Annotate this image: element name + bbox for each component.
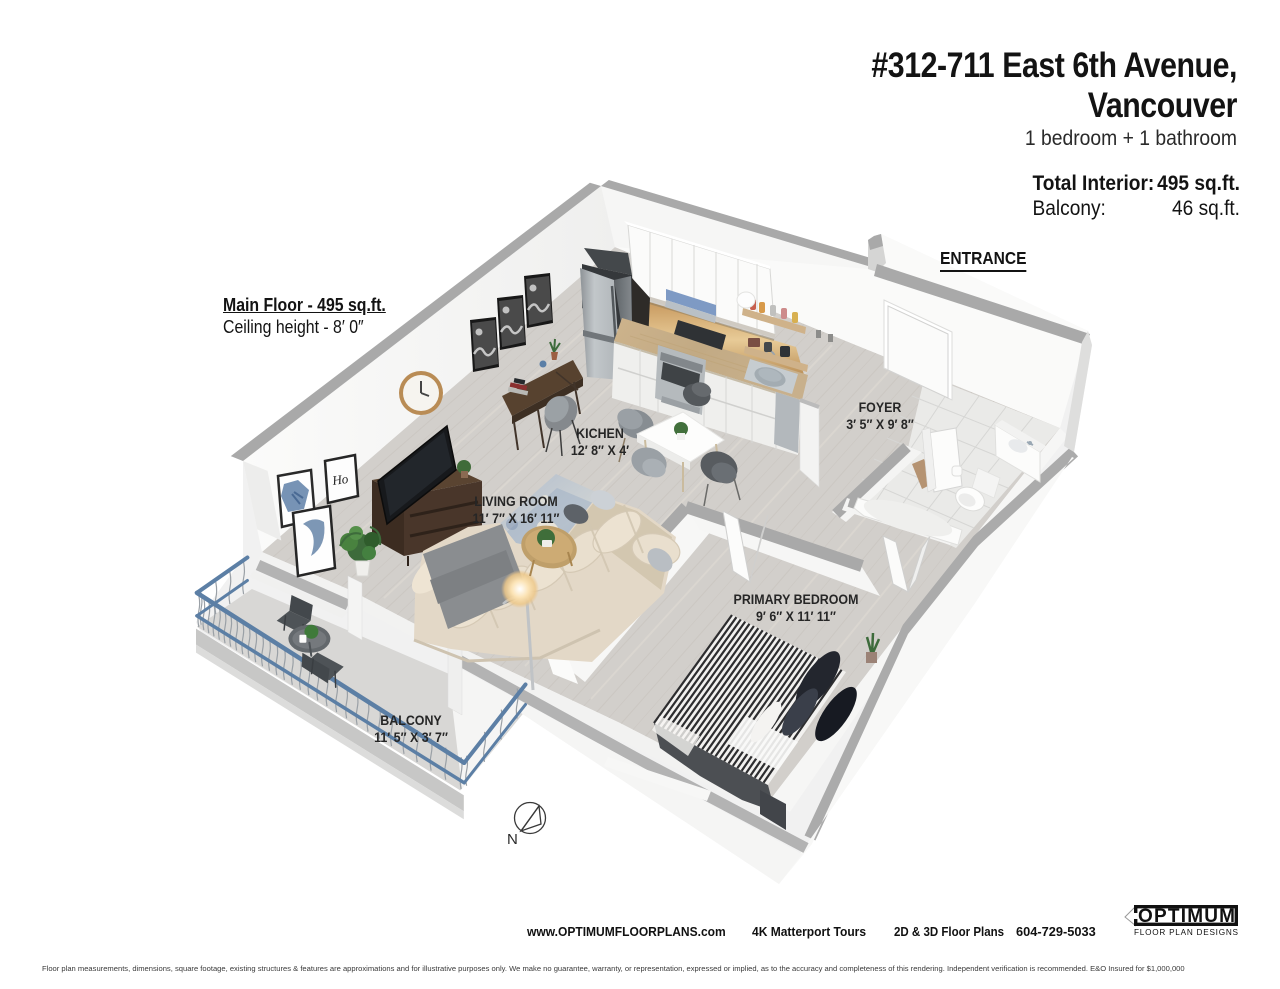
- svg-text:OPTIMUM: OPTIMUM: [1138, 906, 1235, 927]
- svg-text:FLOOR PLAN DESIGNS: FLOOR PLAN DESIGNS: [1134, 928, 1239, 937]
- svg-text:Ho: Ho: [330, 471, 349, 488]
